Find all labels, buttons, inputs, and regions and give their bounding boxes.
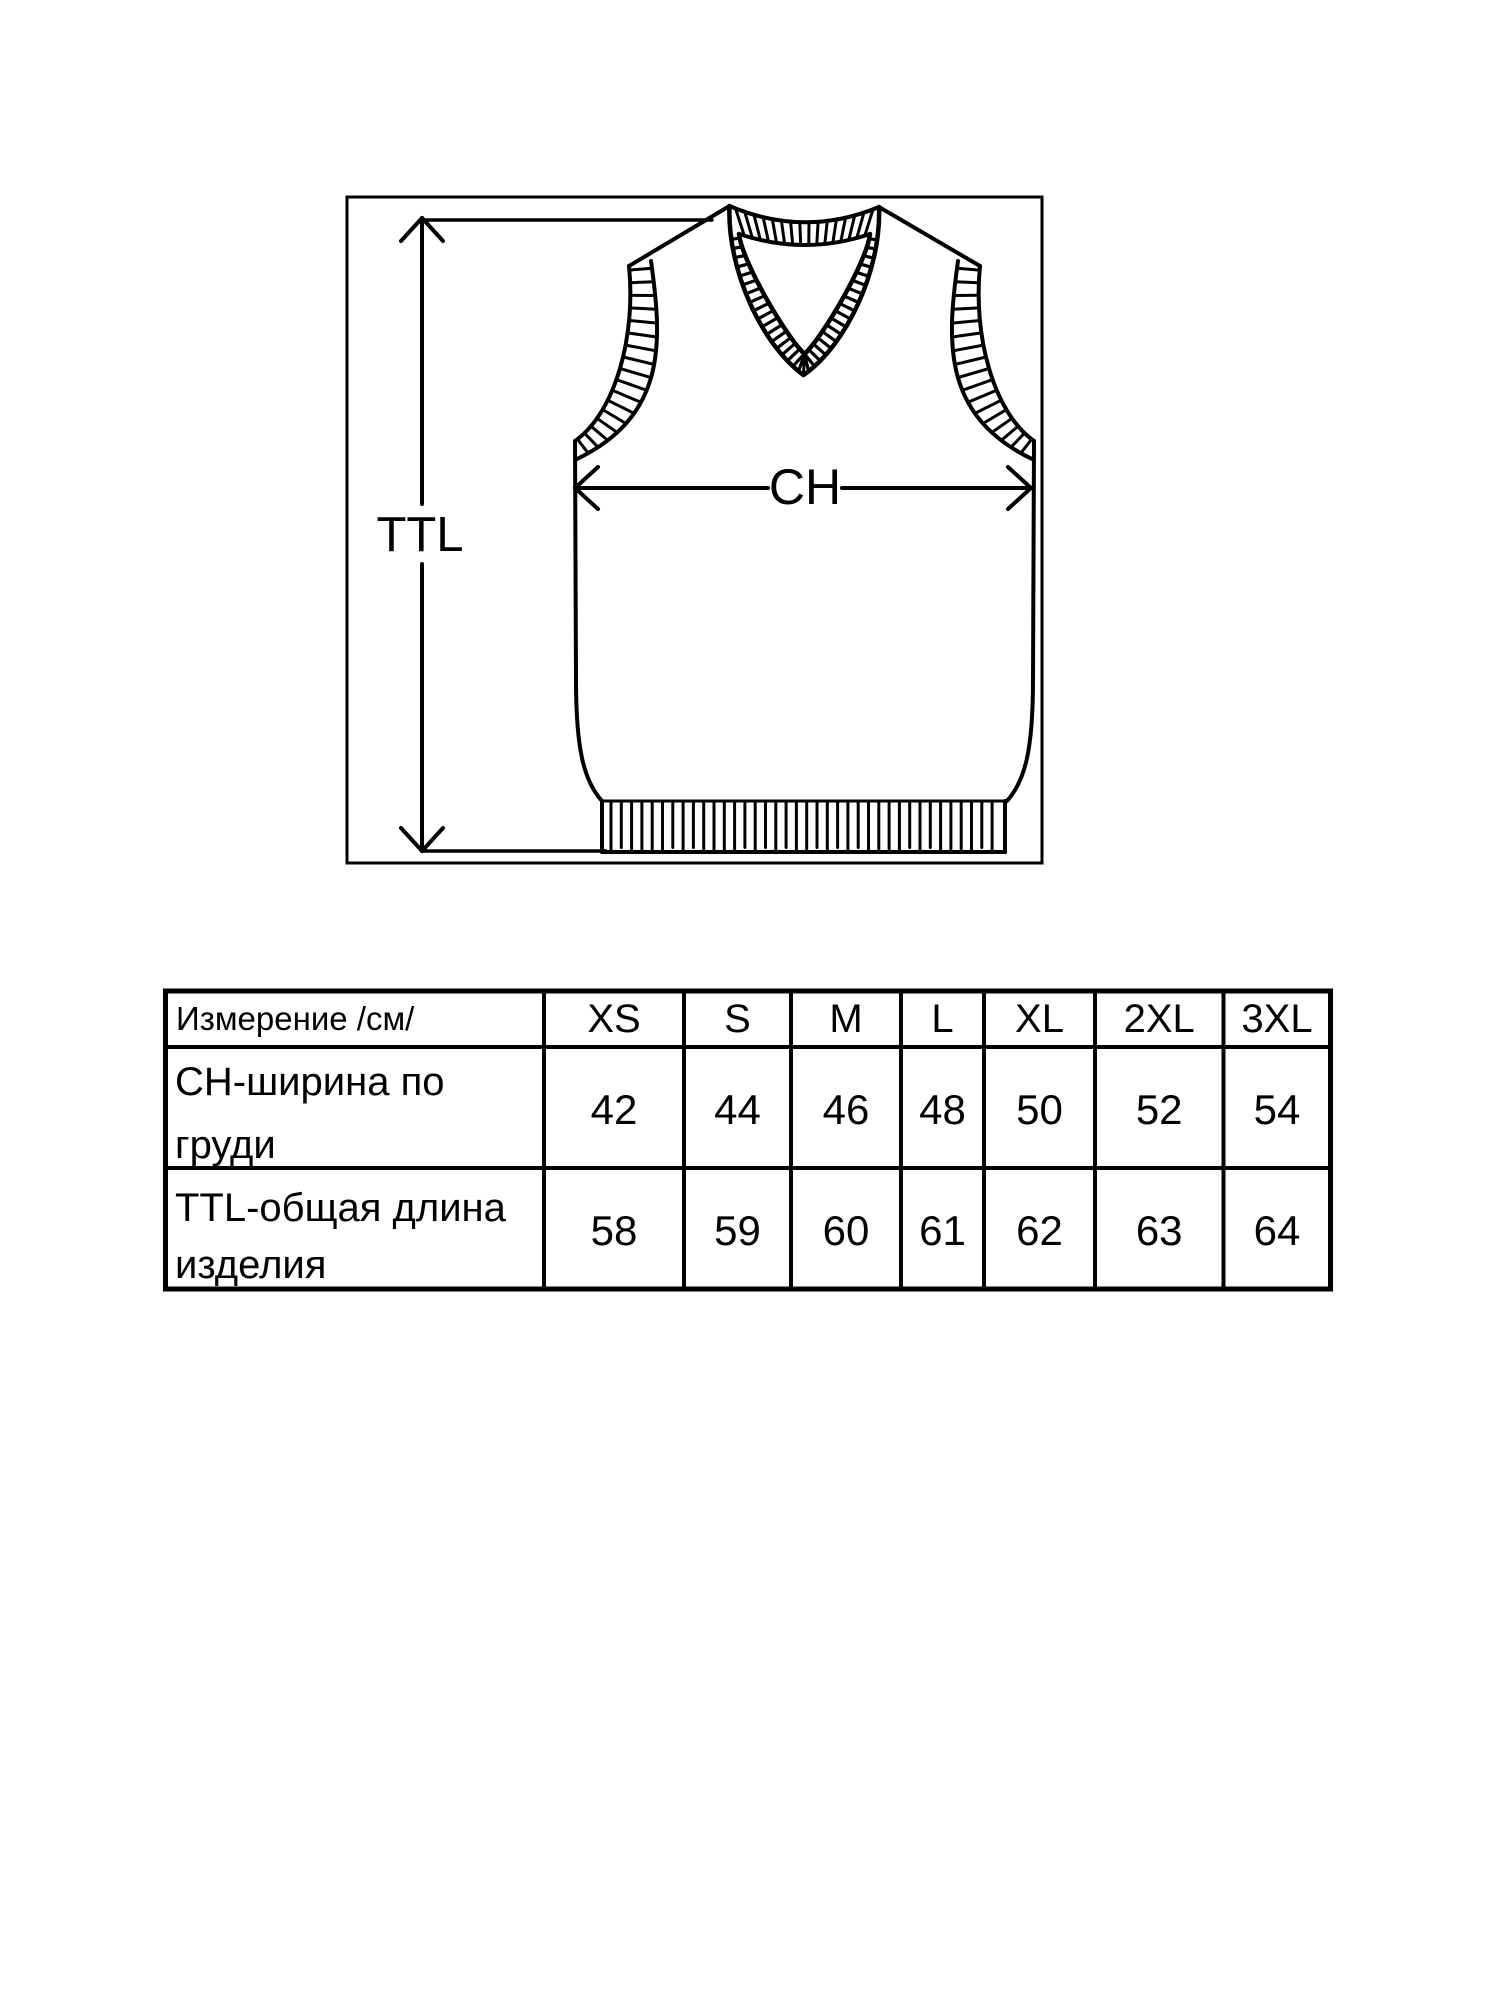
svg-text:63: 63 <box>1136 1207 1183 1254</box>
svg-text:52: 52 <box>1136 1086 1183 1133</box>
svg-text:Измерение /см/: Измерение /см/ <box>176 1000 415 1037</box>
svg-text:XS: XS <box>587 997 640 1041</box>
svg-text:64: 64 <box>1254 1207 1301 1254</box>
svg-text:46: 46 <box>823 1086 870 1133</box>
svg-text:TTL-общая длина: TTL-общая длина <box>175 1186 507 1230</box>
svg-text:48: 48 <box>919 1086 966 1133</box>
svg-text:44: 44 <box>714 1086 761 1133</box>
svg-text:3XL: 3XL <box>1241 997 1312 1041</box>
svg-text:XL: XL <box>1015 997 1064 1041</box>
svg-text:42: 42 <box>591 1086 638 1133</box>
svg-text:CH-ширина по: CH-ширина по <box>175 1060 444 1104</box>
svg-text:58: 58 <box>591 1207 638 1254</box>
svg-text:M: M <box>829 997 862 1041</box>
svg-text:2XL: 2XL <box>1124 997 1195 1041</box>
svg-text:59: 59 <box>714 1207 761 1254</box>
svg-text:50: 50 <box>1016 1086 1063 1133</box>
svg-text:61: 61 <box>919 1207 966 1254</box>
svg-text:62: 62 <box>1016 1207 1063 1254</box>
svg-text:L: L <box>931 997 953 1041</box>
svg-text:54: 54 <box>1254 1086 1301 1133</box>
svg-text:60: 60 <box>823 1207 870 1254</box>
svg-text:изделия: изделия <box>175 1243 326 1287</box>
svg-text:S: S <box>724 997 751 1041</box>
svg-text:груди: груди <box>175 1123 276 1167</box>
